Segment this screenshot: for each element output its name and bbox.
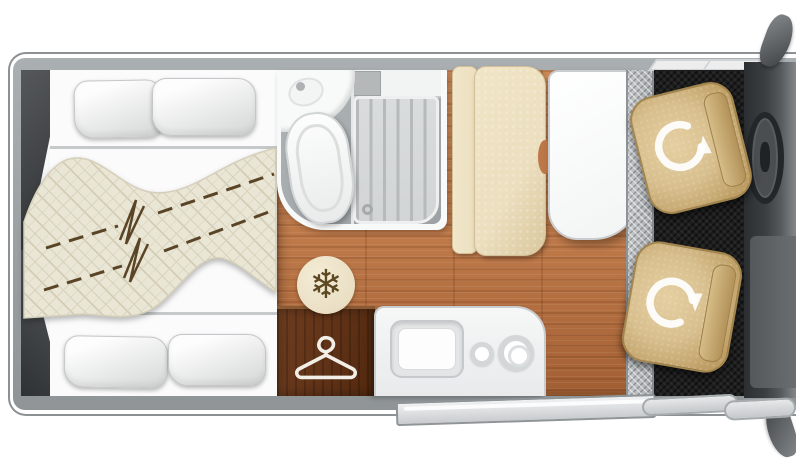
swivel-arrow-icon [633,259,709,343]
swivel-seat-driver [618,238,746,377]
fridge-marker: ❄ [297,256,355,314]
steering-wheel [746,112,784,204]
burner-large [498,335,534,371]
kitchen-sink-basin [398,328,456,370]
pillow [152,78,256,136]
pillow [74,79,165,139]
campervan-floorplan: ❄ [0,0,796,466]
pillow [64,335,169,389]
snowflake-icon: ❄ [309,265,343,305]
burner-small [470,342,494,366]
cab-side-step [724,397,796,421]
faucet [296,82,305,91]
hanger-icon [289,331,363,381]
wardrobe [277,306,375,396]
pillow [168,334,266,386]
toilet-seat [292,121,348,214]
shower-drain [362,204,373,215]
cab-console [750,236,796,388]
bench-seat [474,66,546,256]
